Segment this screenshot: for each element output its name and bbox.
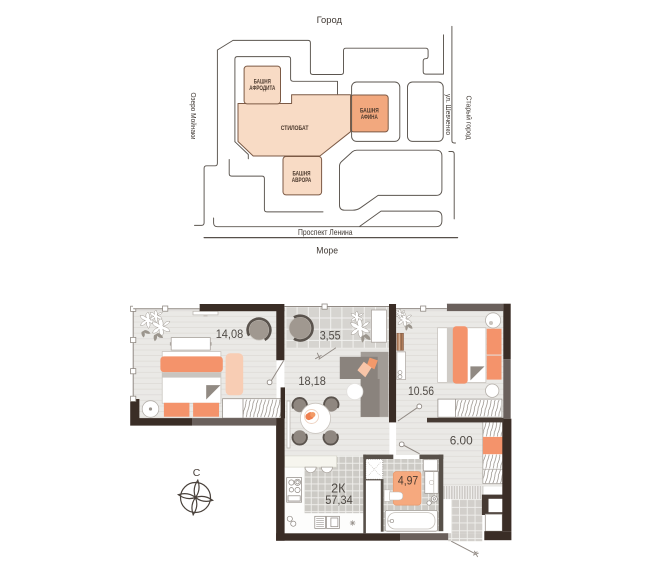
svg-text:10.56: 10.56 [408, 384, 434, 398]
svg-text:Море: Море [316, 246, 338, 257]
svg-text:14,08: 14,08 [216, 327, 244, 341]
svg-text:ул. Шевченко: ул. Шевченко [444, 94, 453, 135]
svg-text:Проспект Ленина: Проспект Ленина [298, 227, 353, 237]
svg-text:Озеро Мойнаки: Озеро Мойнаки [189, 93, 198, 140]
svg-text:БАШНЯ: БАШНЯ [293, 172, 311, 178]
svg-text:Город: Город [317, 15, 343, 26]
svg-text:СТИЛОБАТ: СТИЛОБАТ [281, 126, 309, 132]
svg-text:4,97: 4,97 [398, 474, 419, 488]
svg-text:Старый город: Старый город [465, 96, 474, 141]
svg-text:6.00: 6.00 [450, 433, 473, 447]
svg-text:АФИНА: АФИНА [361, 115, 378, 121]
svg-text:АВРОРА: АВРОРА [292, 178, 312, 184]
svg-text:3,55: 3,55 [320, 329, 341, 343]
svg-text:С: С [193, 467, 201, 479]
svg-text:АФРОДИТА: АФРОДИТА [249, 86, 276, 92]
svg-text:57,34: 57,34 [325, 493, 353, 507]
svg-text:БАШНЯ: БАШНЯ [360, 108, 379, 114]
svg-text:18,18: 18,18 [298, 374, 326, 388]
svg-text:БАШНЯ: БАШНЯ [254, 79, 271, 85]
